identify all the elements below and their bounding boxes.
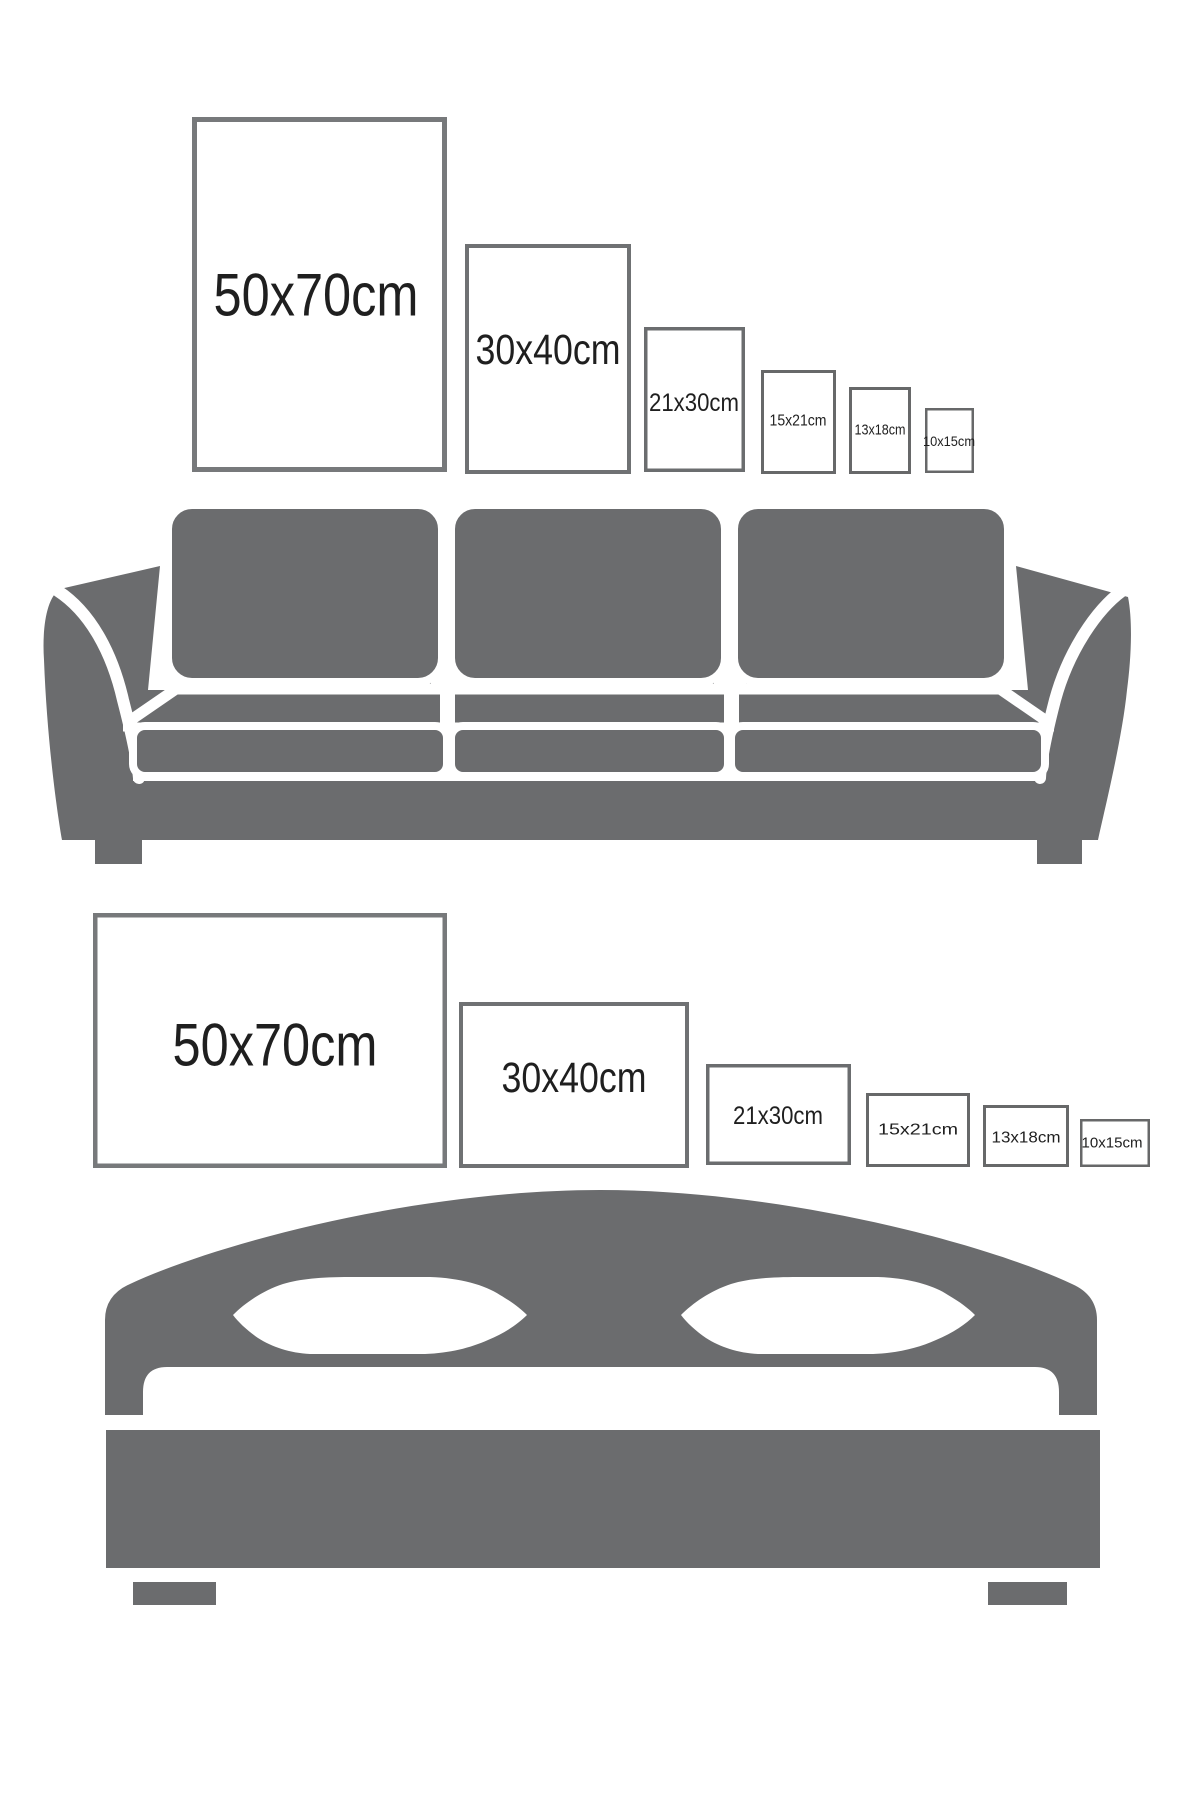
svg-text:30x40cm: 30x40cm xyxy=(502,1054,647,1102)
svg-text:15x21cm: 15x21cm xyxy=(878,1122,958,1139)
svg-text:13x18cm: 13x18cm xyxy=(992,1130,1061,1147)
svg-text:13x18cm: 13x18cm xyxy=(855,422,906,439)
svg-text:50x70cm: 50x70cm xyxy=(214,262,419,329)
svg-text:15x21cm: 15x21cm xyxy=(770,413,827,430)
svg-text:10x15cm: 10x15cm xyxy=(1082,1135,1143,1152)
svg-text:21x30cm: 21x30cm xyxy=(649,389,739,417)
svg-text:21x30cm: 21x30cm xyxy=(733,1102,823,1130)
svg-text:30x40cm: 30x40cm xyxy=(476,326,621,374)
svg-text:50x70cm: 50x70cm xyxy=(173,1012,378,1079)
svg-text:10x15cm: 10x15cm xyxy=(923,433,975,449)
